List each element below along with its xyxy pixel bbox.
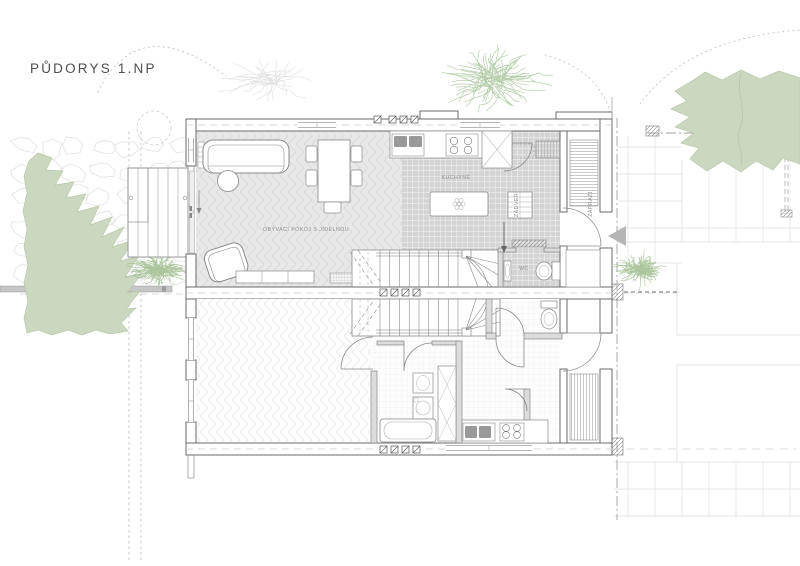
dashed-circle-tree — [137, 111, 171, 145]
sideboard — [236, 271, 314, 283]
house-unit-upper — [186, 97, 682, 299]
chair-icon — [306, 146, 317, 162]
toilet-icon-lower — [541, 301, 557, 329]
sofa — [203, 140, 289, 173]
driveway-lines — [677, 263, 800, 462]
pavement-grid — [614, 136, 800, 518]
label-hall: ZÁDVEŘÍ — [512, 191, 520, 217]
chair-icon — [351, 170, 362, 186]
kitchen-lower — [462, 420, 548, 443]
tall-cabinet — [438, 366, 456, 441]
bath-sink-icon — [413, 373, 433, 393]
porch-decking-lower — [570, 374, 598, 440]
label-living-room: OBÝVACÍ POKOJ S JÍDELNOU — [263, 226, 349, 233]
wood-deck — [128, 168, 188, 257]
page-title: PŮDORYS 1.NP — [30, 61, 157, 76]
tree-canopy-left — [23, 153, 141, 335]
wall-post — [162, 287, 166, 292]
dotted-arc-center — [545, 55, 612, 118]
label-wc: WC — [519, 266, 528, 272]
floor-plan-page: PŮDORYS 1.NP OBÝVACÍ POKOJ S JÍDELNOU KU… — [0, 0, 800, 566]
coffee-table — [218, 171, 239, 192]
fence-post-icon — [646, 126, 659, 136]
storage-cabinet — [508, 192, 532, 218]
floor-plan-drawing: PŮDORYS 1.NP OBÝVACÍ POKOJ S JÍDELNOU KU… — [0, 0, 800, 566]
sink-basin-icon — [465, 426, 477, 438]
kitchen-island — [430, 192, 488, 216]
living-room-floor-lower — [196, 299, 371, 443]
toilet-icon — [536, 262, 560, 280]
label-porch: ZÁPRAŽÍ — [586, 191, 594, 217]
sink-basin-icon — [409, 136, 422, 147]
chair-icon — [306, 170, 317, 186]
wc-sink-icon — [504, 261, 511, 281]
staircase-upper — [350, 250, 500, 287]
chair-icon — [324, 202, 341, 213]
chair-icon — [351, 146, 362, 162]
sliding-door-wc — [512, 240, 546, 247]
sliding-terrace-door — [188, 166, 195, 254]
sink-basin-icon — [479, 426, 491, 438]
boundary-post-icon — [781, 210, 792, 217]
house-unit-lower — [186, 299, 796, 478]
dining-table — [318, 140, 350, 202]
wardrobe — [536, 141, 560, 158]
stove-icon — [446, 134, 478, 156]
wall-stub — [188, 455, 194, 478]
label-kitchen: KUCHYNĚ — [441, 173, 470, 181]
sink-basin-icon — [394, 136, 407, 147]
tree-canopy-topright — [671, 70, 800, 172]
entry-landing — [566, 250, 600, 287]
floor-grille — [330, 273, 352, 283]
sketch-tree-top — [442, 45, 553, 113]
bathtub-icon — [380, 419, 436, 442]
staircase-lower — [350, 299, 500, 336]
